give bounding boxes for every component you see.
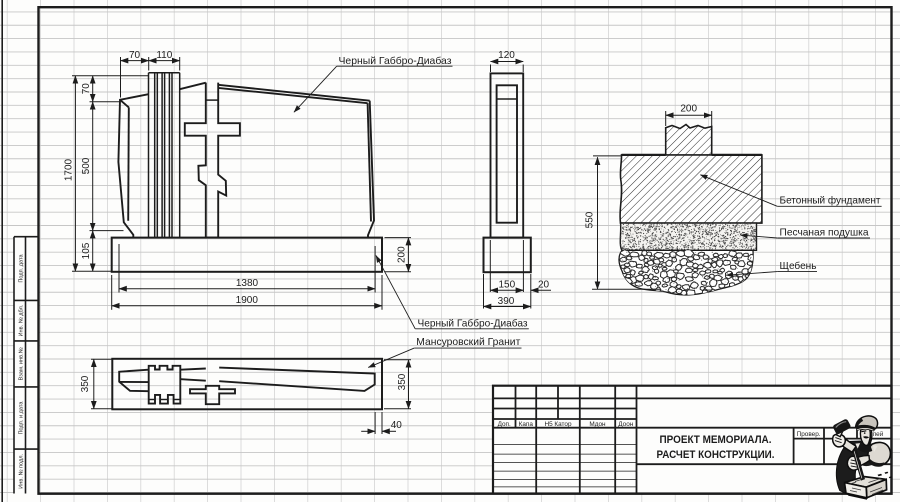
svg-text:20: 20 (538, 280, 550, 291)
svg-text:70: 70 (81, 83, 92, 95)
svg-text:150: 150 (498, 280, 515, 291)
svg-text:1700: 1700 (64, 158, 75, 181)
svg-text:500: 500 (81, 157, 92, 174)
svg-text:Черный Габбро-Диабаз: Черный Габбро-Диабаз (339, 55, 452, 67)
svg-text:Подп. дата: Подп. дата (19, 253, 25, 282)
svg-text:Мдон: Мдон (589, 421, 606, 428)
svg-text:Мансуровский Гранит: Мансуровский Гранит (416, 336, 520, 348)
svg-text:Капа: Капа (519, 421, 534, 428)
svg-text:Н5 Катор: Н5 Катор (544, 421, 571, 428)
svg-text:550: 550 (585, 211, 596, 228)
svg-text:Инв. № дбл.: Инв. № дбл. (19, 304, 25, 336)
svg-text:200: 200 (397, 246, 408, 263)
svg-text:Черный Габбро-Диабаз: Черный Габбро-Диабаз (418, 318, 528, 330)
svg-text:350: 350 (80, 375, 91, 392)
svg-text:Щебень: Щебень (780, 260, 818, 272)
svg-text:40: 40 (391, 420, 403, 431)
svg-text:70: 70 (129, 50, 141, 61)
svg-text:1900: 1900 (236, 295, 259, 306)
svg-text:Бетонный фундамент: Бетонный фундамент (780, 195, 881, 207)
svg-text:пей: пей (873, 430, 884, 438)
svg-text:Подп. и дата: Подп. и дата (19, 401, 25, 435)
svg-text:120: 120 (498, 50, 515, 61)
svg-text:390: 390 (498, 296, 515, 307)
svg-text:РАСЧЕТ КОНСТРУКЦИИ.: РАСЧЕТ КОНСТРУКЦИИ. (657, 449, 775, 461)
svg-text:Доон: Доон (618, 421, 634, 428)
svg-text:Доп.: Доп. (498, 421, 511, 428)
svg-text:Инв. № подл.: Инв. № подл. (19, 453, 25, 488)
svg-text:350: 350 (397, 373, 408, 390)
svg-text:Провер.: Провер. (797, 431, 821, 438)
svg-text:Взам. инв.№: Взам. инв.№ (19, 347, 25, 380)
svg-text:ПРОЕКТ МЕМОРИАЛА.: ПРОЕКТ МЕМОРИАЛА. (660, 434, 772, 446)
svg-text:105: 105 (81, 242, 92, 259)
svg-text:1380: 1380 (236, 278, 259, 289)
svg-text:Песчаная подушка: Песчаная подушка (780, 227, 869, 239)
svg-text:200: 200 (680, 104, 697, 115)
svg-text:110: 110 (156, 50, 172, 61)
